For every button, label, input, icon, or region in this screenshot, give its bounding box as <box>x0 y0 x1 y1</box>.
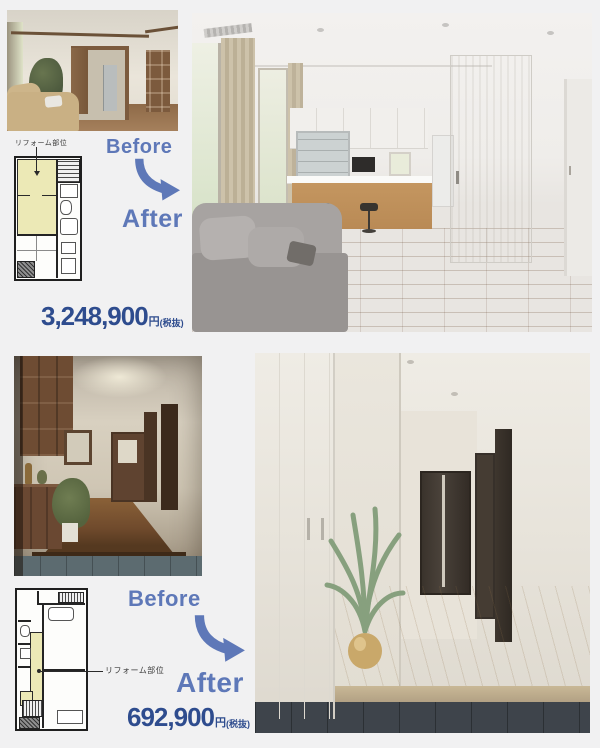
decor-vase <box>37 470 47 484</box>
ceiling-trim <box>145 26 178 34</box>
stairs <box>22 700 43 717</box>
fixture <box>61 242 76 254</box>
ceiling-light <box>407 360 414 364</box>
closet-handle <box>307 518 310 540</box>
door-handle <box>569 166 571 175</box>
picture-frame <box>64 430 92 465</box>
brochure-page: リフォーム部位 Before After 3,248,900 円 (税抜) <box>0 0 600 748</box>
kitchen-window <box>389 152 411 176</box>
ceiling-light <box>451 392 458 396</box>
bathtub <box>60 218 78 235</box>
hall-end-door <box>420 471 471 595</box>
wall-shadow <box>14 356 23 576</box>
price: 3,248,900 円 (税抜) <box>41 303 184 329</box>
price-unit: 円 <box>214 718 226 730</box>
after-photo-living <box>192 13 592 332</box>
right-door <box>161 404 178 510</box>
price-amount: 3,248,900 <box>41 303 148 329</box>
washstand <box>20 648 31 659</box>
entrance-tile-floor <box>14 556 202 576</box>
bar-stool-base <box>362 229 376 233</box>
fixture <box>61 258 76 274</box>
renovation-highlight-area <box>17 159 57 197</box>
stairs <box>57 159 80 183</box>
floorplan-living <box>14 156 82 281</box>
wall <box>18 620 31 622</box>
price-amount: 692,900 <box>127 704 214 730</box>
before-label: Before <box>106 137 172 157</box>
after-label: After <box>122 207 183 232</box>
room-divider <box>36 236 37 261</box>
after-label: After <box>176 669 244 697</box>
counter-top <box>287 176 437 183</box>
wall <box>42 603 44 728</box>
before-after-arrow-icon <box>127 156 183 206</box>
ceiling-light <box>442 23 449 27</box>
before-after-arrow-icon <box>186 612 248 668</box>
ceiling-trim <box>11 31 149 38</box>
door-glass-stripe <box>442 475 445 587</box>
bar-stool-pole <box>368 209 370 231</box>
houseplant <box>52 478 90 528</box>
washstand <box>60 184 78 198</box>
plan-pointer-arrowhead <box>34 171 40 176</box>
door-opening <box>30 194 42 197</box>
plan-label: リフォーム部位 <box>15 140 67 147</box>
entrance-tile <box>17 261 35 278</box>
door-handle <box>456 171 459 184</box>
door-window <box>118 440 137 463</box>
plan-pointer-line <box>36 147 37 172</box>
price: 692,900 円 (税抜) <box>127 704 250 730</box>
before-photo-living <box>7 10 178 131</box>
ceiling-vent <box>204 23 253 38</box>
right-door <box>144 412 157 502</box>
ceiling-light-glow <box>72 356 167 398</box>
before-photo-hallway <box>14 356 202 576</box>
decor-bottle <box>25 463 32 484</box>
houseplant <box>323 501 407 673</box>
plant-pot <box>62 523 78 542</box>
bathtub <box>48 607 74 621</box>
plan-pointer-line <box>41 671 103 672</box>
wall <box>37 603 85 605</box>
after-photo-hallway <box>255 353 590 733</box>
toilet <box>20 625 30 637</box>
bar-stool <box>360 203 378 211</box>
price-unit: 円 <box>148 317 160 329</box>
ceiling-light <box>317 28 324 32</box>
refrigerator <box>103 65 117 111</box>
entrance-step-face <box>333 686 590 702</box>
renovation-highlight-area <box>17 195 57 236</box>
sofa <box>7 92 79 131</box>
price-tax-note: (税抜) <box>160 319 184 329</box>
before-label: Before <box>128 588 201 610</box>
wall <box>18 643 31 645</box>
floorplan-hallway <box>15 588 88 731</box>
furniture <box>57 710 83 724</box>
built-in-oven <box>352 157 375 172</box>
right-door <box>564 79 592 276</box>
balcony-hatch <box>58 592 84 603</box>
plan-label: リフォーム部位 <box>105 667 164 675</box>
wall <box>56 159 58 278</box>
paneled-door <box>146 50 170 112</box>
sofa-pillow <box>44 95 62 108</box>
sliding-door <box>450 55 532 263</box>
price-tax-note: (税抜) <box>226 720 250 730</box>
toilet <box>60 200 72 215</box>
entrance-tile <box>19 717 40 729</box>
ceiling-light <box>547 31 554 35</box>
wall <box>18 666 31 668</box>
